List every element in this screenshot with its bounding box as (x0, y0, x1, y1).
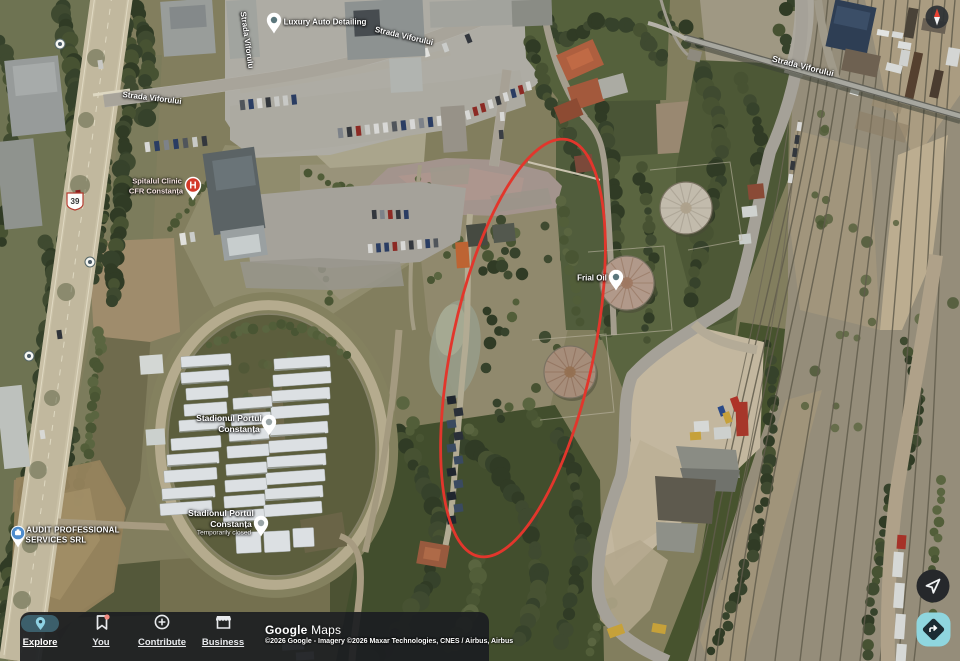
svg-text:H: H (189, 180, 196, 191)
svg-text:39: 39 (71, 197, 80, 206)
